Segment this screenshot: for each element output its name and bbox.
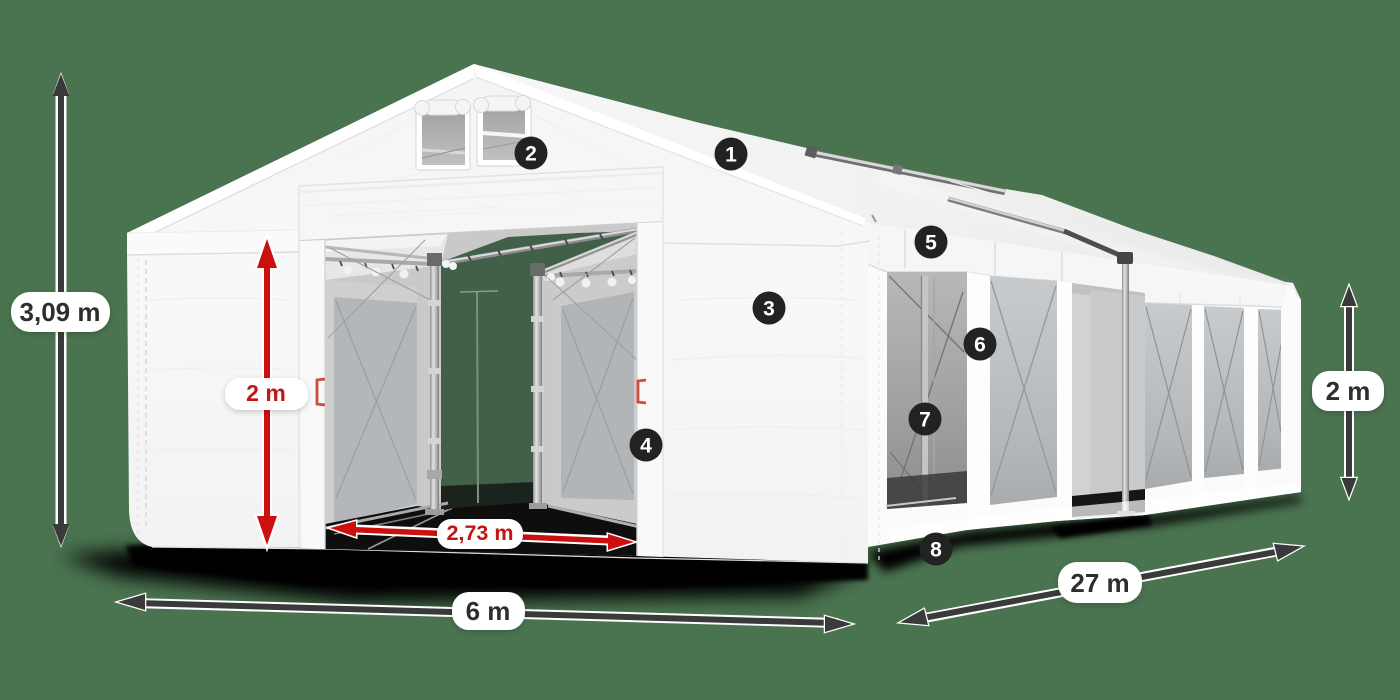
svg-text:6 m: 6 m — [466, 596, 511, 626]
svg-text:8: 8 — [930, 539, 942, 562]
svg-text:5: 5 — [925, 232, 937, 255]
svg-text:4: 4 — [640, 435, 652, 458]
svg-text:1: 1 — [725, 144, 737, 167]
svg-text:2: 2 — [525, 143, 537, 166]
svg-text:2,73 m: 2,73 m — [447, 521, 514, 545]
svg-text:27 m: 27 m — [1070, 568, 1129, 598]
svg-text:6: 6 — [974, 334, 986, 357]
svg-text:2 m: 2 m — [1326, 376, 1371, 406]
svg-text:2 m: 2 m — [246, 380, 286, 406]
svg-text:3,09 m: 3,09 m — [20, 297, 101, 327]
svg-text:3: 3 — [763, 298, 775, 321]
svg-text:7: 7 — [919, 409, 931, 432]
